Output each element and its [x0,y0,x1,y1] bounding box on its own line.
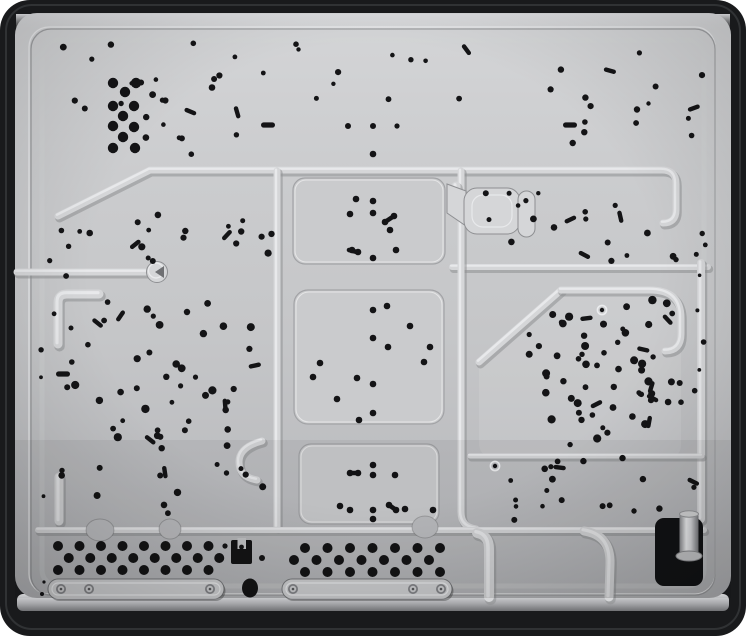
lower-shading [15,440,731,598]
photo-canvas [0,0,746,636]
gas-hob-underside-photo [0,0,746,636]
